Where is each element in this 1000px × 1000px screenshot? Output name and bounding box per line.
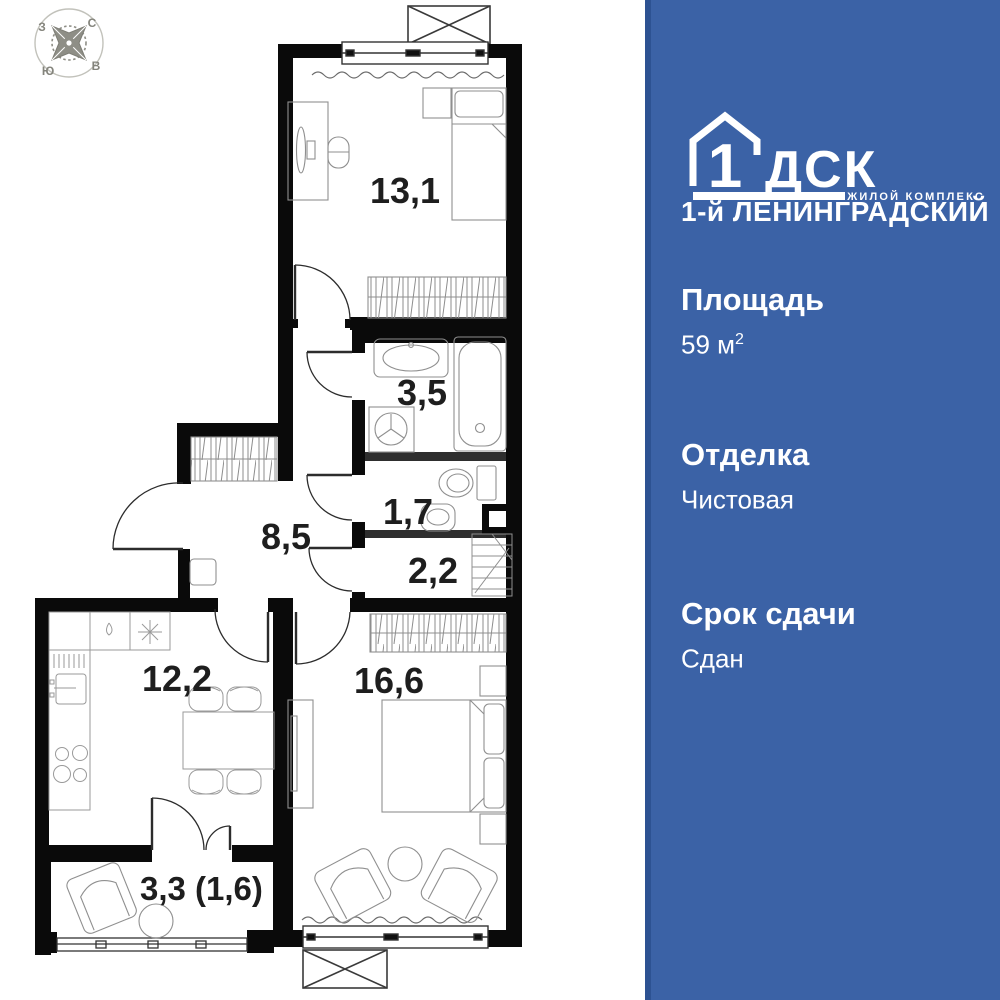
compass-north: С [88, 16, 97, 30]
hob-symbol [54, 746, 88, 783]
room-label-bathroom: 3,5 [397, 372, 447, 413]
balcony-table-symbol [139, 904, 173, 938]
stat-area-value-text: 59 м [681, 330, 735, 360]
office-chair-symbol [328, 137, 349, 168]
floor-plan: З С Ю В [0, 0, 648, 1000]
hall-wardrobe-symbol [191, 437, 277, 481]
window-balcony [57, 938, 247, 951]
window-top [342, 42, 488, 64]
stat-area: Площадь 59 м2 [681, 282, 981, 361]
info-panel: 1 ДСК ЖИЛОЙ КОМПЛЕКС 1-й ЛЕНИНГРАДСКИЙ П… [645, 0, 1000, 1000]
room-label-hall: 8,5 [261, 516, 311, 557]
toilet-symbol [439, 466, 496, 500]
bathtub-symbol [454, 337, 506, 451]
compass-east: В [92, 59, 101, 73]
logo-number: 1 [708, 132, 742, 201]
doors [113, 265, 352, 850]
bed-single-symbol [452, 88, 506, 220]
stat-finishing-value: Чистовая [681, 479, 981, 516]
door-wc [307, 475, 352, 520]
ac-unit-box-bottom [303, 950, 387, 988]
stat-deadline-value: Сдан [681, 638, 981, 675]
room-label-kitchen: 12,2 [142, 658, 212, 699]
complex-name: 1-й ЛЕНИНГРАДСКИЙ [681, 196, 1000, 228]
door-entrance [113, 483, 183, 549]
compass-rose: З С Ю В [35, 9, 103, 78]
kitchen-sink-symbol [50, 674, 86, 704]
double-bed-symbol [382, 700, 506, 812]
armchair-symbol [418, 846, 500, 925]
stat-finishing-label: Отделка [681, 437, 981, 473]
stat-deadline-value-text: Сдан [681, 644, 744, 674]
coffee-table-symbol [388, 847, 422, 881]
nightstand-symbol-top [423, 88, 451, 118]
dining-table-symbol [183, 712, 274, 769]
walls [35, 44, 522, 955]
nightstand-symbol [480, 666, 506, 696]
door-balcony-left [152, 798, 204, 850]
developer-logo: 1 ДСК ЖИЛОЙ КОМПЛЕКС [679, 108, 991, 208]
door-bedroom-top [295, 265, 350, 320]
shoe-cabinet-symbol [190, 559, 216, 585]
wardrobe-symbol-bedroom-top [368, 277, 506, 318]
dining-chair-symbol [227, 687, 261, 711]
stat-deadline: Срок сдачи Сдан [681, 596, 981, 675]
door-balcony-right [206, 826, 230, 850]
door-bedroom-main [296, 612, 350, 664]
stat-finishing: Отделка Чистовая [681, 437, 981, 516]
stat-deadline-label: Срок сдачи [681, 596, 981, 632]
stat-area-label: Площадь [681, 282, 981, 318]
room-label-wc: 1,7 [383, 491, 433, 532]
wardrobe-symbol-bedroom-main [370, 614, 506, 652]
dining-chair-symbol [189, 770, 223, 794]
stat-finishing-value-text: Чистовая [681, 485, 794, 515]
dining-chair-symbol [227, 770, 261, 794]
compass-west: З [38, 20, 46, 34]
compass-south: Ю [42, 64, 54, 78]
stat-area-value: 59 м2 [681, 324, 981, 361]
washing-machine-symbol [369, 407, 414, 452]
dish-rack-symbol [54, 654, 84, 668]
door-kitchen [215, 609, 268, 662]
room-label-bedroom-top: 13,1 [370, 170, 440, 211]
desk-symbol [288, 102, 328, 200]
hob-burner-icon [138, 620, 162, 644]
armchair-symbol [312, 846, 394, 925]
door-storage [309, 548, 352, 591]
floorplan-card: З С Ю В [0, 0, 1000, 1000]
balcony-armchair-symbol [65, 861, 139, 936]
ac-unit-box-top [408, 6, 490, 44]
room-label-balcony: 3,3 (1,6) [140, 870, 263, 907]
door-bathroom [307, 352, 352, 397]
curtain-top [312, 72, 504, 78]
curtain-bottom [302, 917, 482, 923]
stat-area-value-sup: 2 [735, 331, 744, 348]
nightstand-symbol [480, 814, 506, 844]
room-label-bedroom-main: 16,6 [354, 660, 424, 701]
room-label-storage: 2,2 [408, 550, 458, 591]
window-bottom [303, 926, 488, 948]
